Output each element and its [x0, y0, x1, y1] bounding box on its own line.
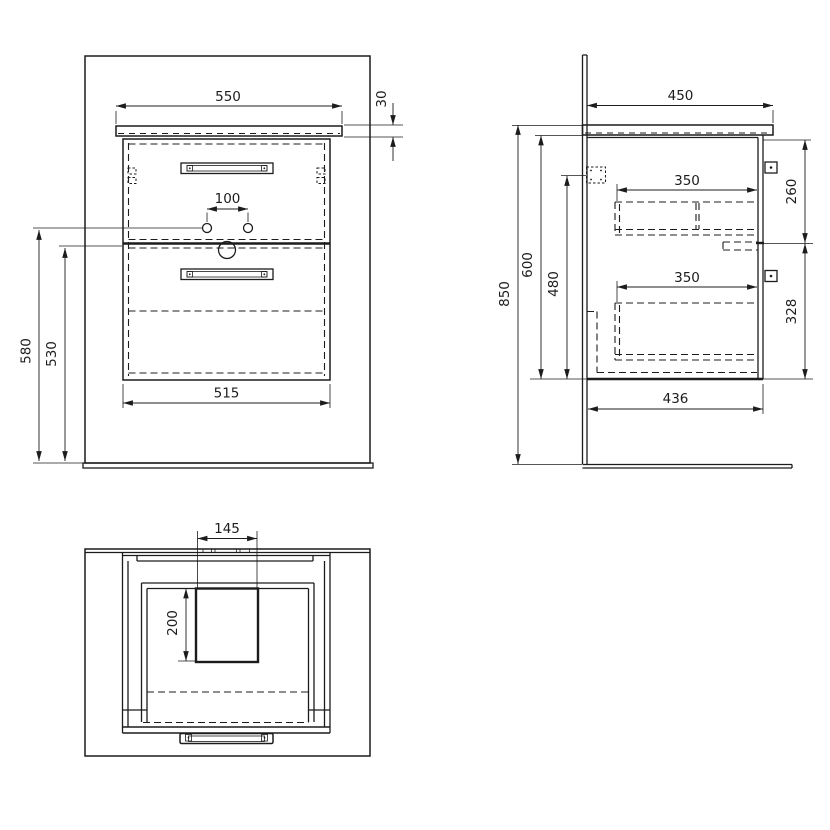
faucet-spacing-dim: 100 — [215, 191, 241, 207]
sink-cutout — [196, 589, 258, 663]
top-view: 145 200 — [85, 521, 370, 756]
drawer-box-plan — [142, 583, 315, 722]
floor-panel — [583, 465, 793, 469]
front-view: 550 30 100 580 530 515 — [19, 56, 404, 468]
front-cabinet-height-dim: 530 — [44, 341, 60, 367]
upper-mount-bracket — [765, 162, 777, 173]
upper-drawer-hidden — [615, 202, 757, 235]
cabinet-body — [123, 139, 330, 380]
faucet-hole-right — [244, 224, 253, 233]
lower-drawer-height-dim: 328 — [784, 299, 800, 325]
technical-drawing-canvas: 550 30 100 580 530 515 — [0, 0, 830, 830]
side-view: 450 850 600 480 350 350 260 328 436 — [497, 55, 813, 468]
front-total-height-dim: 580 — [19, 338, 35, 364]
side-overall-height-dim: 850 — [497, 281, 513, 307]
wall-panel — [583, 55, 588, 464]
extension-line — [198, 531, 258, 588]
countertop-front — [116, 126, 342, 136]
front-cabinet-width-dim: 515 — [214, 386, 240, 402]
upper-drawer-depth-dim: 350 — [674, 173, 700, 189]
right-hinge-bracket — [317, 168, 325, 184]
upper-drawer-handle — [181, 163, 273, 174]
cabinet-depth-dim: 436 — [663, 391, 689, 407]
front-countertop-thickness-dim: 30 — [374, 90, 390, 107]
cabinet-side-walls — [123, 553, 331, 734]
wall-hinge-bracket — [587, 167, 606, 183]
left-hinge-bracket — [128, 168, 136, 184]
faucet-hole-left — [203, 224, 212, 233]
drawer-slide-hidden — [723, 242, 758, 250]
cabinet-back-wall — [123, 556, 331, 562]
lower-drawer-handle — [181, 269, 273, 280]
lower-mount-bracket — [765, 271, 777, 282]
countertop-side — [583, 125, 774, 135]
sink-depth-dim: 200 — [165, 610, 181, 636]
back-panel-outline — [85, 56, 370, 463]
side-hinge-height-dim: 480 — [546, 271, 562, 297]
side-countertop-depth-dim: 450 — [668, 88, 694, 104]
lower-drawer-hidden — [615, 303, 757, 360]
upper-drawer-height-dim: 260 — [784, 179, 800, 205]
handle-plan — [180, 734, 273, 744]
back-recess-hidden — [587, 312, 757, 373]
cabinet-front-band — [123, 727, 331, 733]
side-front-height-dim: 600 — [520, 252, 536, 278]
sink-width-dim: 145 — [214, 521, 240, 537]
drawing-sheet: 550 30 100 580 530 515 — [0, 0, 830, 830]
front-countertop-width-dim: 550 — [215, 89, 241, 105]
lower-drawer-depth-dim: 350 — [674, 270, 700, 286]
cabinet-front-edge — [758, 135, 763, 379]
